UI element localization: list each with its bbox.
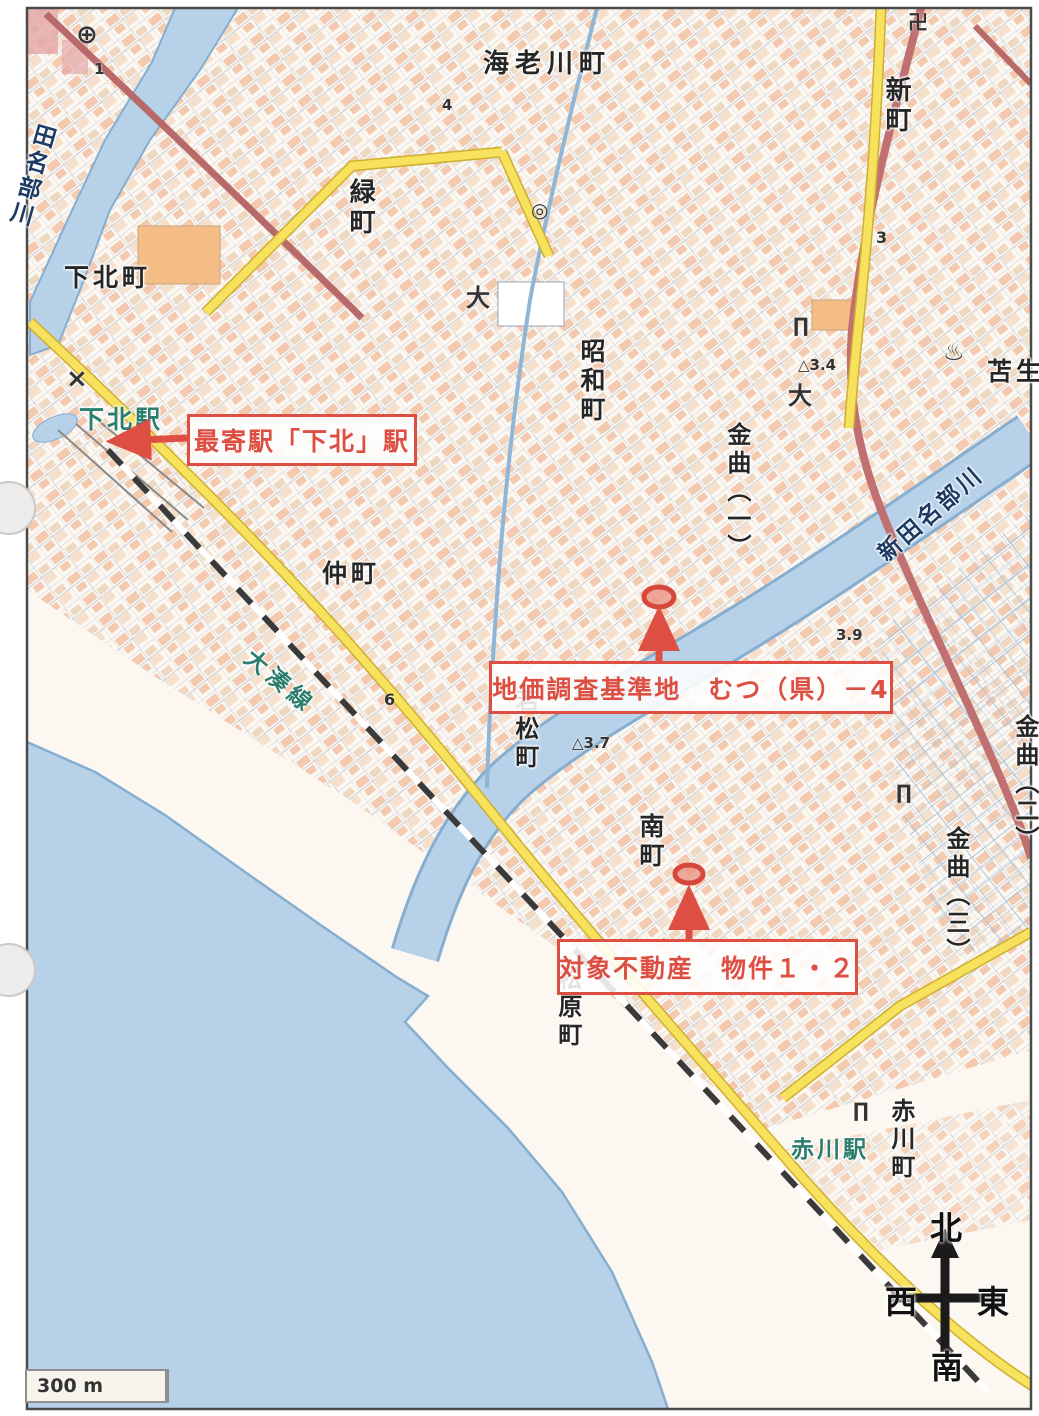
hatched-building — [28, 8, 58, 54]
compass-east-label: 東 — [977, 1277, 1009, 1323]
scale-bar-label: 300 m — [37, 1375, 103, 1397]
map-canvas — [0, 0, 1039, 1416]
large-building — [138, 226, 220, 284]
large-building — [812, 300, 852, 330]
scanned-map-page: 海老川町新町緑町下北町昭和町金曲（一）苫生仲町若松町南町松原町赤川町金曲（二）金… — [0, 0, 1039, 1416]
scale-bar: 300 m — [25, 1369, 169, 1403]
compass-west-label: 西 — [885, 1277, 917, 1323]
compass-south-label: 南 — [931, 1342, 963, 1388]
compass-north-label: 北 — [930, 1203, 962, 1249]
